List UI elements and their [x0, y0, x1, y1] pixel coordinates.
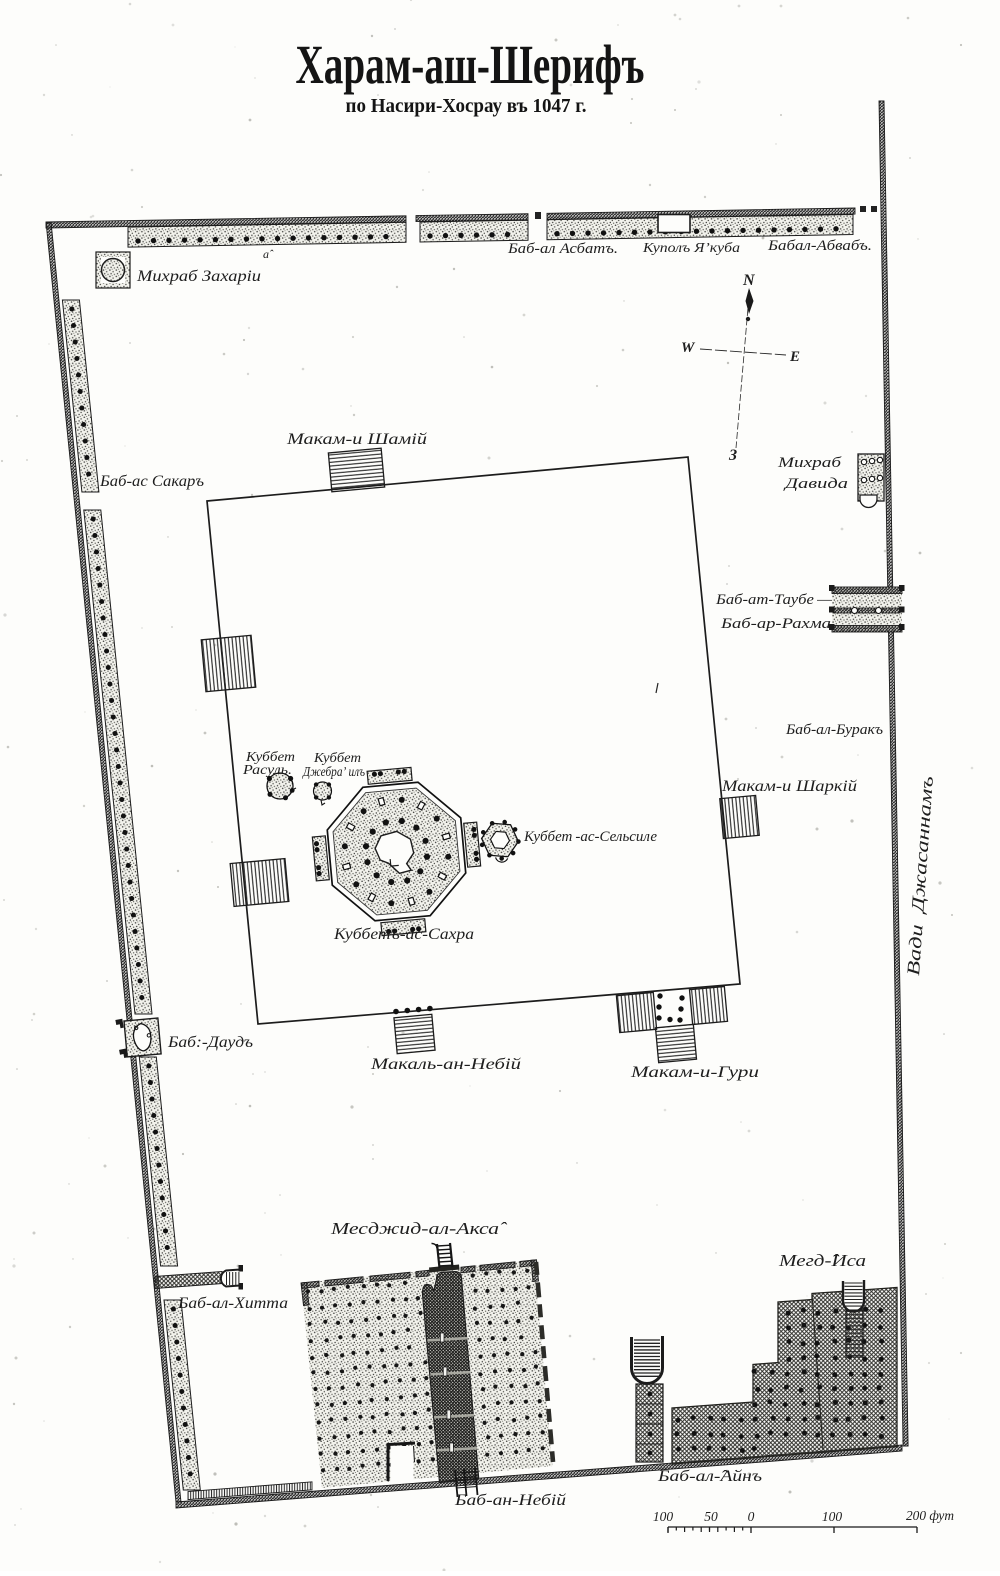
svg-text:Харам-аш-Шерифъ: Харам-аш-Шерифъ	[296, 34, 645, 95]
svg-text:Джебра’ илъ: Джебра’ илъ	[301, 764, 365, 779]
svg-text:Баб-ал-Хитта: Баб-ал-Хитта	[177, 1295, 288, 1312]
svg-text:200 фут: 200 фут	[906, 1508, 954, 1523]
svg-text:З: З	[728, 447, 737, 464]
svg-text:Макам-и Шамій: Макам-и Шамій	[286, 431, 427, 448]
svg-text:Куполъ Я’куба: Куполъ Я’куба	[642, 241, 740, 256]
svg-text:Баб-ас Сакаръ: Баб-ас Сакаръ	[99, 473, 204, 490]
svg-text:W: W	[681, 340, 696, 356]
svg-text:Баб-ан-Небій: Баб-ан-Небій	[454, 1492, 566, 1509]
svg-text:Расуль.: Расуль.	[242, 762, 292, 777]
svg-text:Куббет -ас-Сельсиле: Куббет -ас-Сельсиле	[523, 829, 658, 845]
svg-text:0: 0	[748, 1509, 755, 1524]
svg-text:Куббет: Куббет	[313, 750, 361, 765]
svg-text:Михраб Захаріи: Михраб Захаріи	[136, 268, 261, 285]
svg-text:N: N	[742, 272, 756, 289]
svg-text:Макам-и Шаркій: Макам-и Шаркій	[721, 778, 857, 795]
svg-text:Давида: Давида	[782, 476, 848, 492]
svg-text:Макам-и-Гури: Макам-и-Гури	[630, 1064, 760, 1081]
svg-text:E: E	[789, 349, 800, 365]
svg-text:Мегд-̂Иса: Мегд-̂Иса	[778, 1251, 866, 1270]
svg-text:Баб-ал-̂Айнъ: Баб-ал-̂Айнъ	[657, 1468, 762, 1485]
svg-text:Баб-ал Асбатъ.: Баб-ал Асбатъ.	[507, 241, 618, 257]
svg-text:Макаль-ан-Небій: Макаль-ан-Небій	[370, 1056, 522, 1073]
svg-text:Михраб: Михраб	[777, 455, 842, 471]
svg-text:Бабал-Абвабъ.: Бабал-Абвабъ.	[767, 238, 872, 254]
svg-text:Баб-ал-Буракъ: Баб-ал-Буракъ	[785, 722, 883, 738]
svg-text:50: 50	[704, 1509, 718, 1524]
svg-text:100: 100	[822, 1509, 843, 1524]
svg-text:Баб-ар-Рахма: Баб-ар-Рахма	[720, 616, 831, 632]
svg-text:по Насири-Хосрау въ 1047 г.: по Насири-Хосрау въ 1047 г.	[346, 95, 587, 117]
svg-text:Баб-ат-Таубе —: Баб-ат-Таубе —	[715, 592, 833, 608]
svg-text:Месджид-ал-Акса̂: Месджид-ал-Акса̂	[330, 1219, 508, 1238]
svg-text:Баб:-Даудъ: Баб:-Даудъ	[167, 1034, 253, 1051]
svg-text:Куббетъ-ас-Сахра: Куббетъ-ас-Сахра	[333, 926, 474, 943]
svg-text:100: 100	[653, 1509, 674, 1524]
